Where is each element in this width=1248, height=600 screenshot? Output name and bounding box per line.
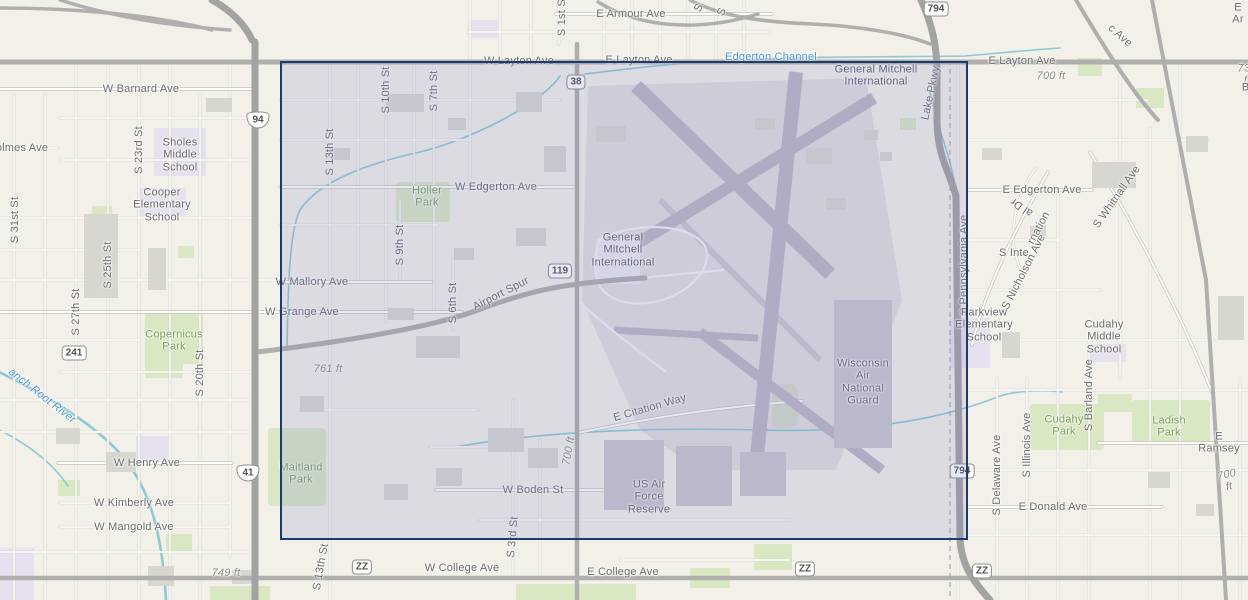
selection-rectangle[interactable] <box>280 61 968 540</box>
map-canvas[interactable]: E Armour AveW Layton AveE Layton AveEdge… <box>0 0 1248 600</box>
